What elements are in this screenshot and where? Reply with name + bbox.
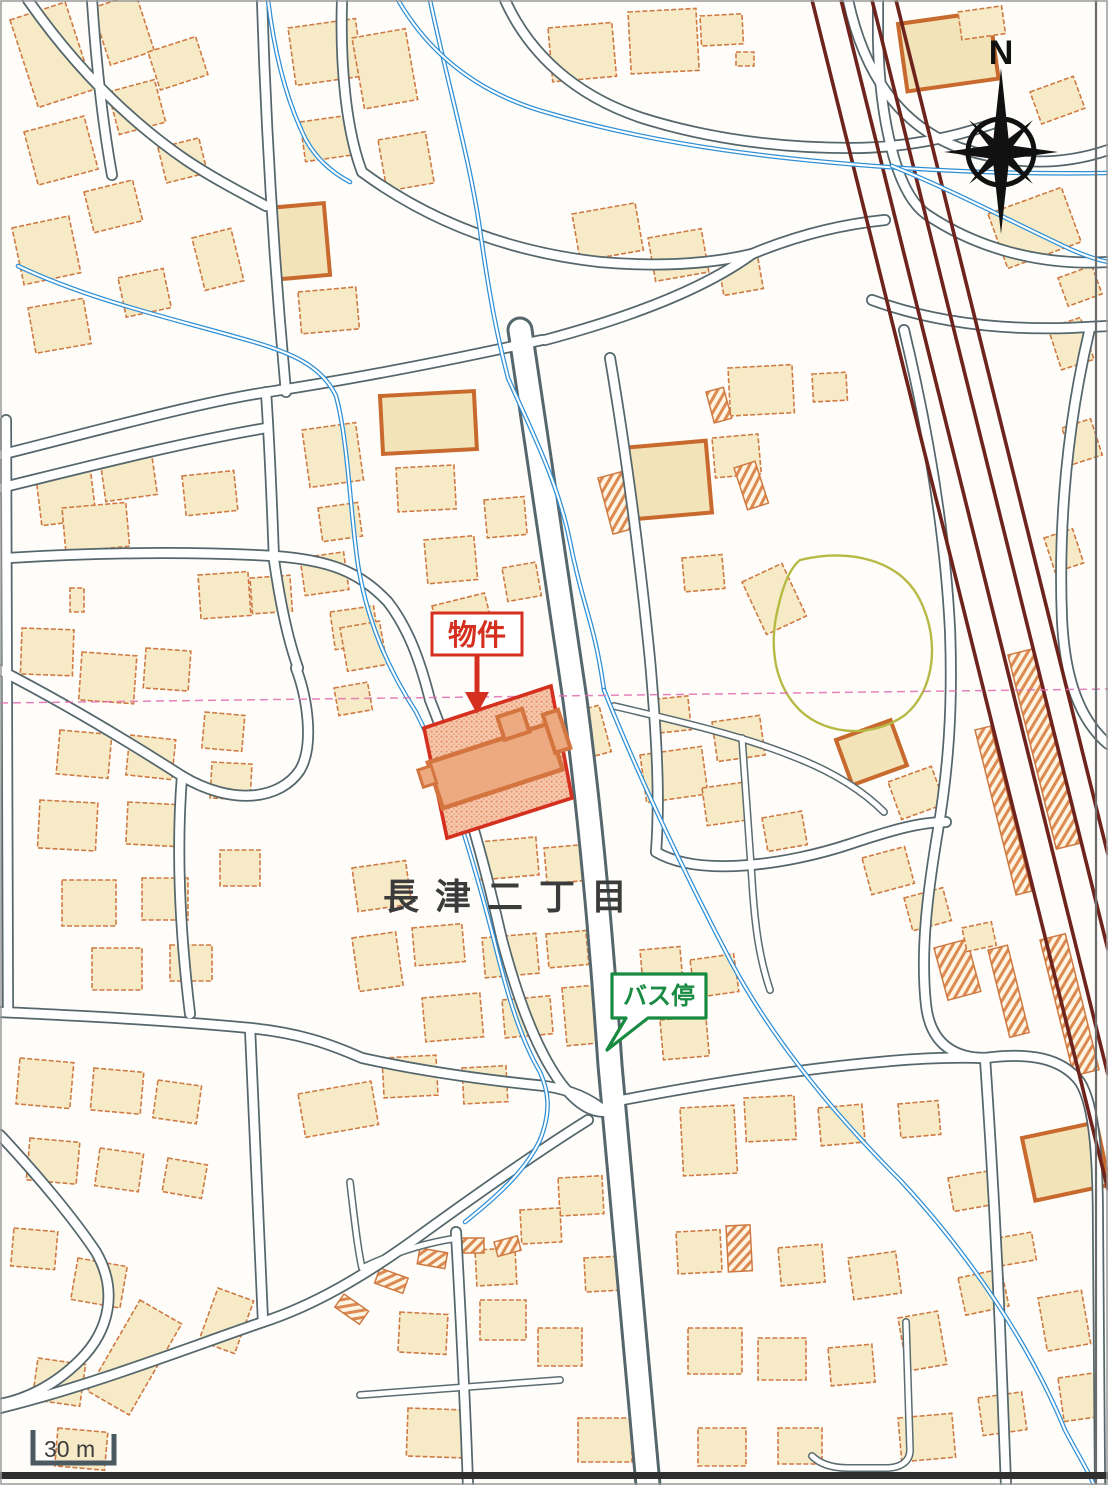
scanned-location-map: 物件 バス停 長津二丁目 N 30 m [0,0,1108,1485]
compass-north-label: N [989,34,1014,72]
area-name-label: 長津二丁目 [383,876,643,917]
map-canvas: 物件 バス停 長津二丁目 N 30 m [0,0,1108,1485]
scale-bar-label: 30 m [44,1436,95,1462]
park-outline [774,556,932,731]
bus-stop-label: バス停 [623,982,695,1010]
property-label: 物件 [448,619,506,652]
